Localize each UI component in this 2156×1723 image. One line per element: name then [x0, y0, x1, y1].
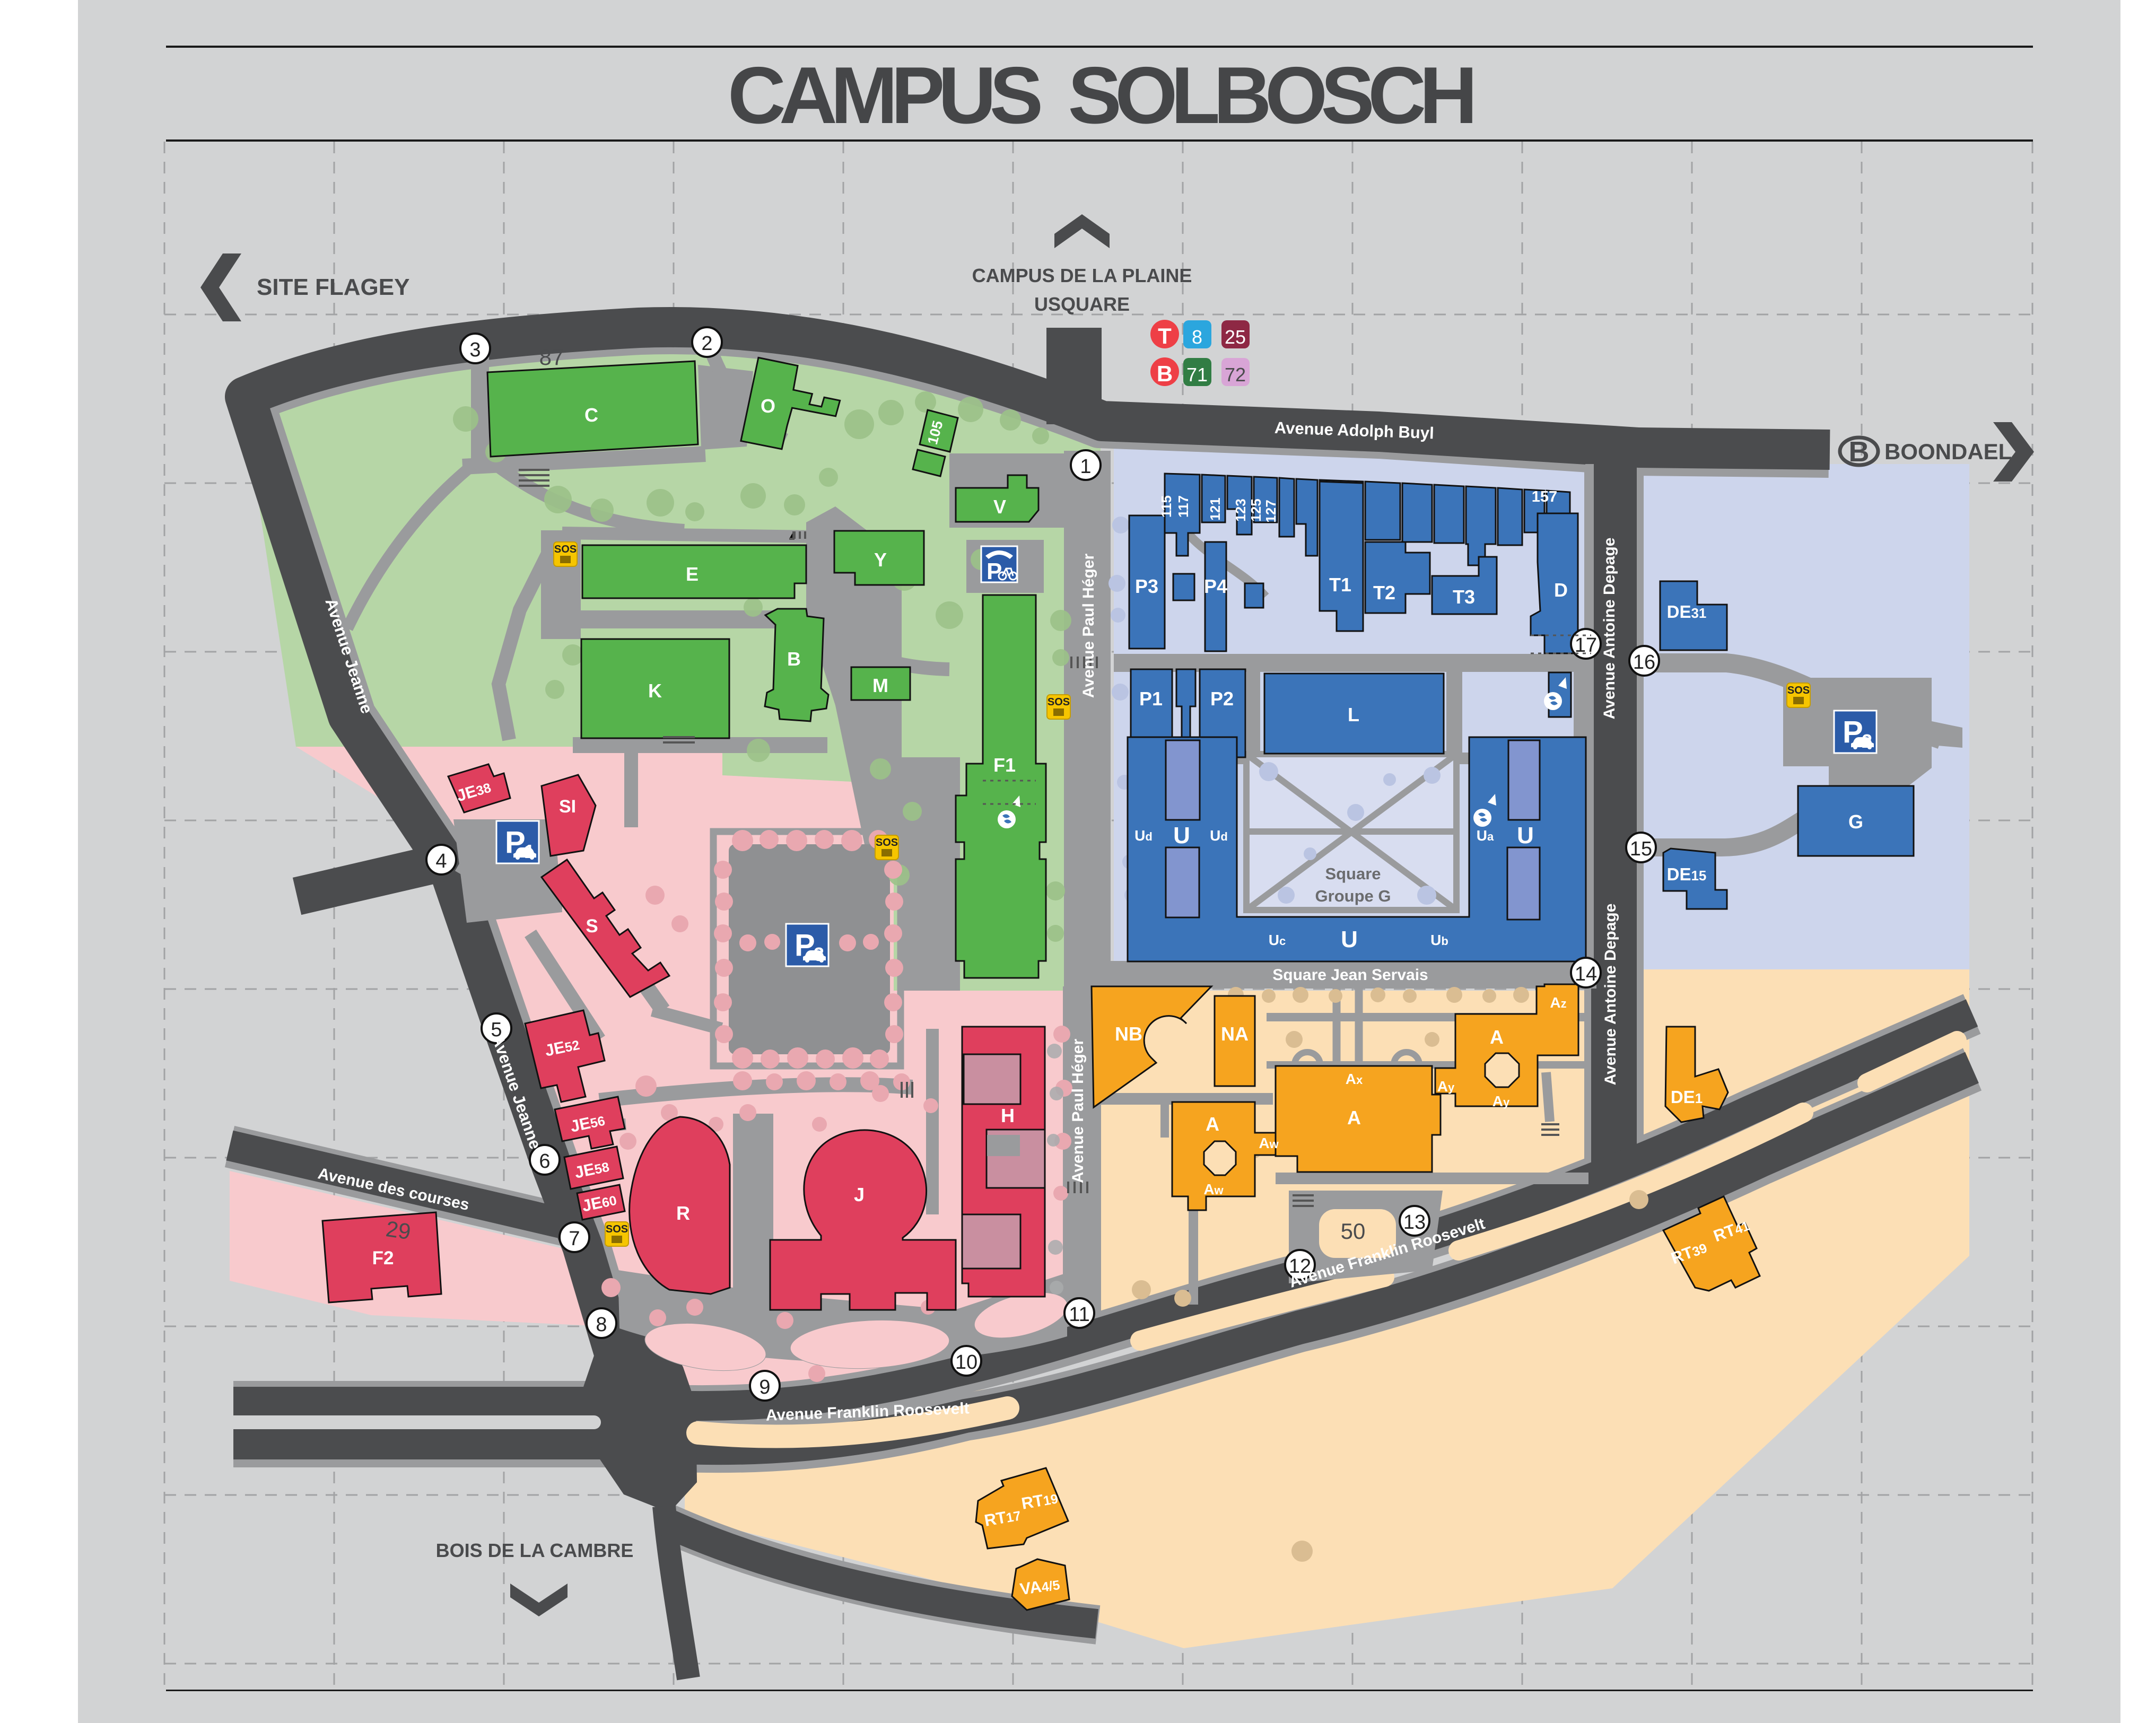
- svg-text:Uc: Uc: [1269, 932, 1286, 948]
- svg-text:T2: T2: [1373, 582, 1395, 604]
- svg-text:C: C: [584, 404, 598, 426]
- svg-text:71: 71: [1186, 364, 1208, 386]
- svg-text:U: U: [1517, 823, 1534, 849]
- svg-text:SOS: SOS: [606, 1223, 628, 1235]
- svg-text:Y: Y: [874, 549, 887, 571]
- svg-text:G: G: [1848, 811, 1863, 833]
- svg-text:B: B: [1849, 436, 1870, 468]
- svg-text:BOONDAEL: BOONDAEL: [1884, 439, 2012, 464]
- svg-text:14: 14: [1575, 963, 1597, 985]
- svg-text:USQUARE: USQUARE: [1034, 293, 1130, 315]
- svg-text:A: A: [1347, 1107, 1361, 1129]
- svg-text:10: 10: [955, 1351, 977, 1374]
- svg-text:F1: F1: [993, 754, 1016, 776]
- svg-text:Avenue Paul Héger: Avenue Paul Héger: [1080, 554, 1097, 698]
- svg-text:U: U: [1341, 926, 1358, 952]
- svg-text:Ay: Ay: [1492, 1093, 1510, 1109]
- svg-text:M: M: [872, 675, 888, 696]
- svg-text:U: U: [1173, 823, 1190, 849]
- svg-text:157: 157: [1532, 488, 1557, 505]
- svg-text:4: 4: [435, 850, 447, 872]
- svg-text:DE1: DE1: [1671, 1087, 1703, 1107]
- svg-text:T: T: [1158, 323, 1172, 348]
- svg-text:DE15: DE15: [1667, 864, 1707, 884]
- svg-text:BOIS DE LA CAMBRE: BOIS DE LA CAMBRE: [436, 1540, 634, 1561]
- svg-text:117: 117: [1175, 495, 1191, 518]
- svg-text:29: 29: [385, 1216, 413, 1244]
- svg-text:T1: T1: [1329, 574, 1351, 596]
- svg-text:O: O: [761, 395, 775, 417]
- svg-text:Ay: Ay: [1437, 1078, 1455, 1095]
- svg-text:123: 123: [1233, 498, 1249, 521]
- svg-text:Ud: Ud: [1210, 827, 1228, 844]
- svg-text:SOS: SOS: [554, 544, 577, 555]
- svg-text:Ax: Ax: [1346, 1071, 1363, 1087]
- svg-text:T3: T3: [1453, 586, 1475, 608]
- svg-text:8: 8: [1192, 326, 1202, 348]
- svg-text:SI: SI: [559, 797, 576, 817]
- svg-text:V: V: [993, 496, 1006, 518]
- svg-text:1: 1: [1080, 456, 1091, 478]
- svg-text:115: 115: [1158, 495, 1174, 518]
- svg-text:8: 8: [596, 1314, 607, 1336]
- svg-text:9: 9: [759, 1376, 770, 1398]
- svg-text:E: E: [686, 563, 699, 585]
- svg-text:SOS: SOS: [1048, 696, 1070, 708]
- svg-text:Az: Az: [1550, 994, 1566, 1011]
- svg-text:Ub: Ub: [1430, 932, 1448, 948]
- svg-text:SITE FLAGEY: SITE FLAGEY: [257, 274, 409, 300]
- svg-text:A: A: [1490, 1026, 1504, 1048]
- svg-text:P2: P2: [1210, 688, 1234, 710]
- svg-text:R: R: [676, 1202, 690, 1224]
- svg-text:K: K: [648, 680, 662, 702]
- svg-text:D: D: [1554, 579, 1568, 601]
- svg-text:SOS: SOS: [876, 837, 898, 849]
- svg-text:B: B: [787, 648, 801, 670]
- svg-text:Square: Square: [1325, 864, 1381, 883]
- svg-text:H: H: [1001, 1105, 1015, 1126]
- svg-text:L: L: [1348, 704, 1359, 725]
- svg-text:Aw: Aw: [1203, 1181, 1224, 1197]
- svg-text:S: S: [586, 916, 598, 937]
- svg-text:J: J: [854, 1184, 865, 1205]
- svg-text:3: 3: [469, 339, 481, 361]
- svg-text:Ud: Ud: [1134, 827, 1153, 844]
- svg-text:Avenue Antoine Depage: Avenue Antoine Depage: [1602, 904, 1619, 1086]
- svg-text:SOS: SOS: [1787, 685, 1810, 696]
- svg-text:P1: P1: [1139, 688, 1163, 710]
- svg-text:NB: NB: [1115, 1023, 1142, 1045]
- svg-text:Groupe G: Groupe G: [1315, 887, 1391, 905]
- svg-text:A: A: [1206, 1113, 1219, 1135]
- svg-text:CAMPUS SOLBOSCH: CAMPUS SOLBOSCH: [728, 50, 1481, 141]
- svg-text:P3: P3: [1135, 575, 1158, 597]
- svg-text:Avenue Antoine Depage: Avenue Antoine Depage: [1601, 538, 1618, 720]
- svg-text:CAMPUS DE LA PLAINE: CAMPUS DE LA PLAINE: [972, 265, 1192, 286]
- svg-text:6: 6: [539, 1150, 550, 1173]
- svg-text:P: P: [987, 558, 1002, 584]
- svg-text:P4: P4: [1204, 575, 1227, 597]
- svg-text:13: 13: [1403, 1211, 1426, 1234]
- svg-text:Avenue Paul Héger: Avenue Paul Héger: [1069, 1039, 1087, 1184]
- svg-text:NA: NA: [1221, 1023, 1249, 1045]
- svg-text:DE31: DE31: [1667, 602, 1707, 622]
- svg-text:B: B: [1157, 361, 1173, 386]
- svg-text:2: 2: [701, 333, 712, 355]
- svg-text:72: 72: [1225, 364, 1246, 386]
- svg-text:11: 11: [1069, 1304, 1089, 1326]
- svg-text:125: 125: [1248, 498, 1264, 521]
- svg-text:Ua: Ua: [1477, 827, 1494, 844]
- svg-text:50: 50: [1341, 1219, 1366, 1244]
- svg-text:7: 7: [569, 1228, 580, 1250]
- svg-text:15: 15: [1630, 838, 1652, 860]
- svg-text:87: 87: [539, 345, 564, 370]
- svg-text:16: 16: [1633, 651, 1655, 674]
- svg-text:Aw: Aw: [1259, 1135, 1279, 1151]
- svg-text:121: 121: [1207, 497, 1223, 520]
- svg-text:F2: F2: [372, 1248, 394, 1269]
- svg-text:25: 25: [1225, 326, 1246, 348]
- svg-text:127: 127: [1263, 500, 1279, 522]
- svg-text:Square Jean Servais: Square Jean Servais: [1272, 966, 1428, 984]
